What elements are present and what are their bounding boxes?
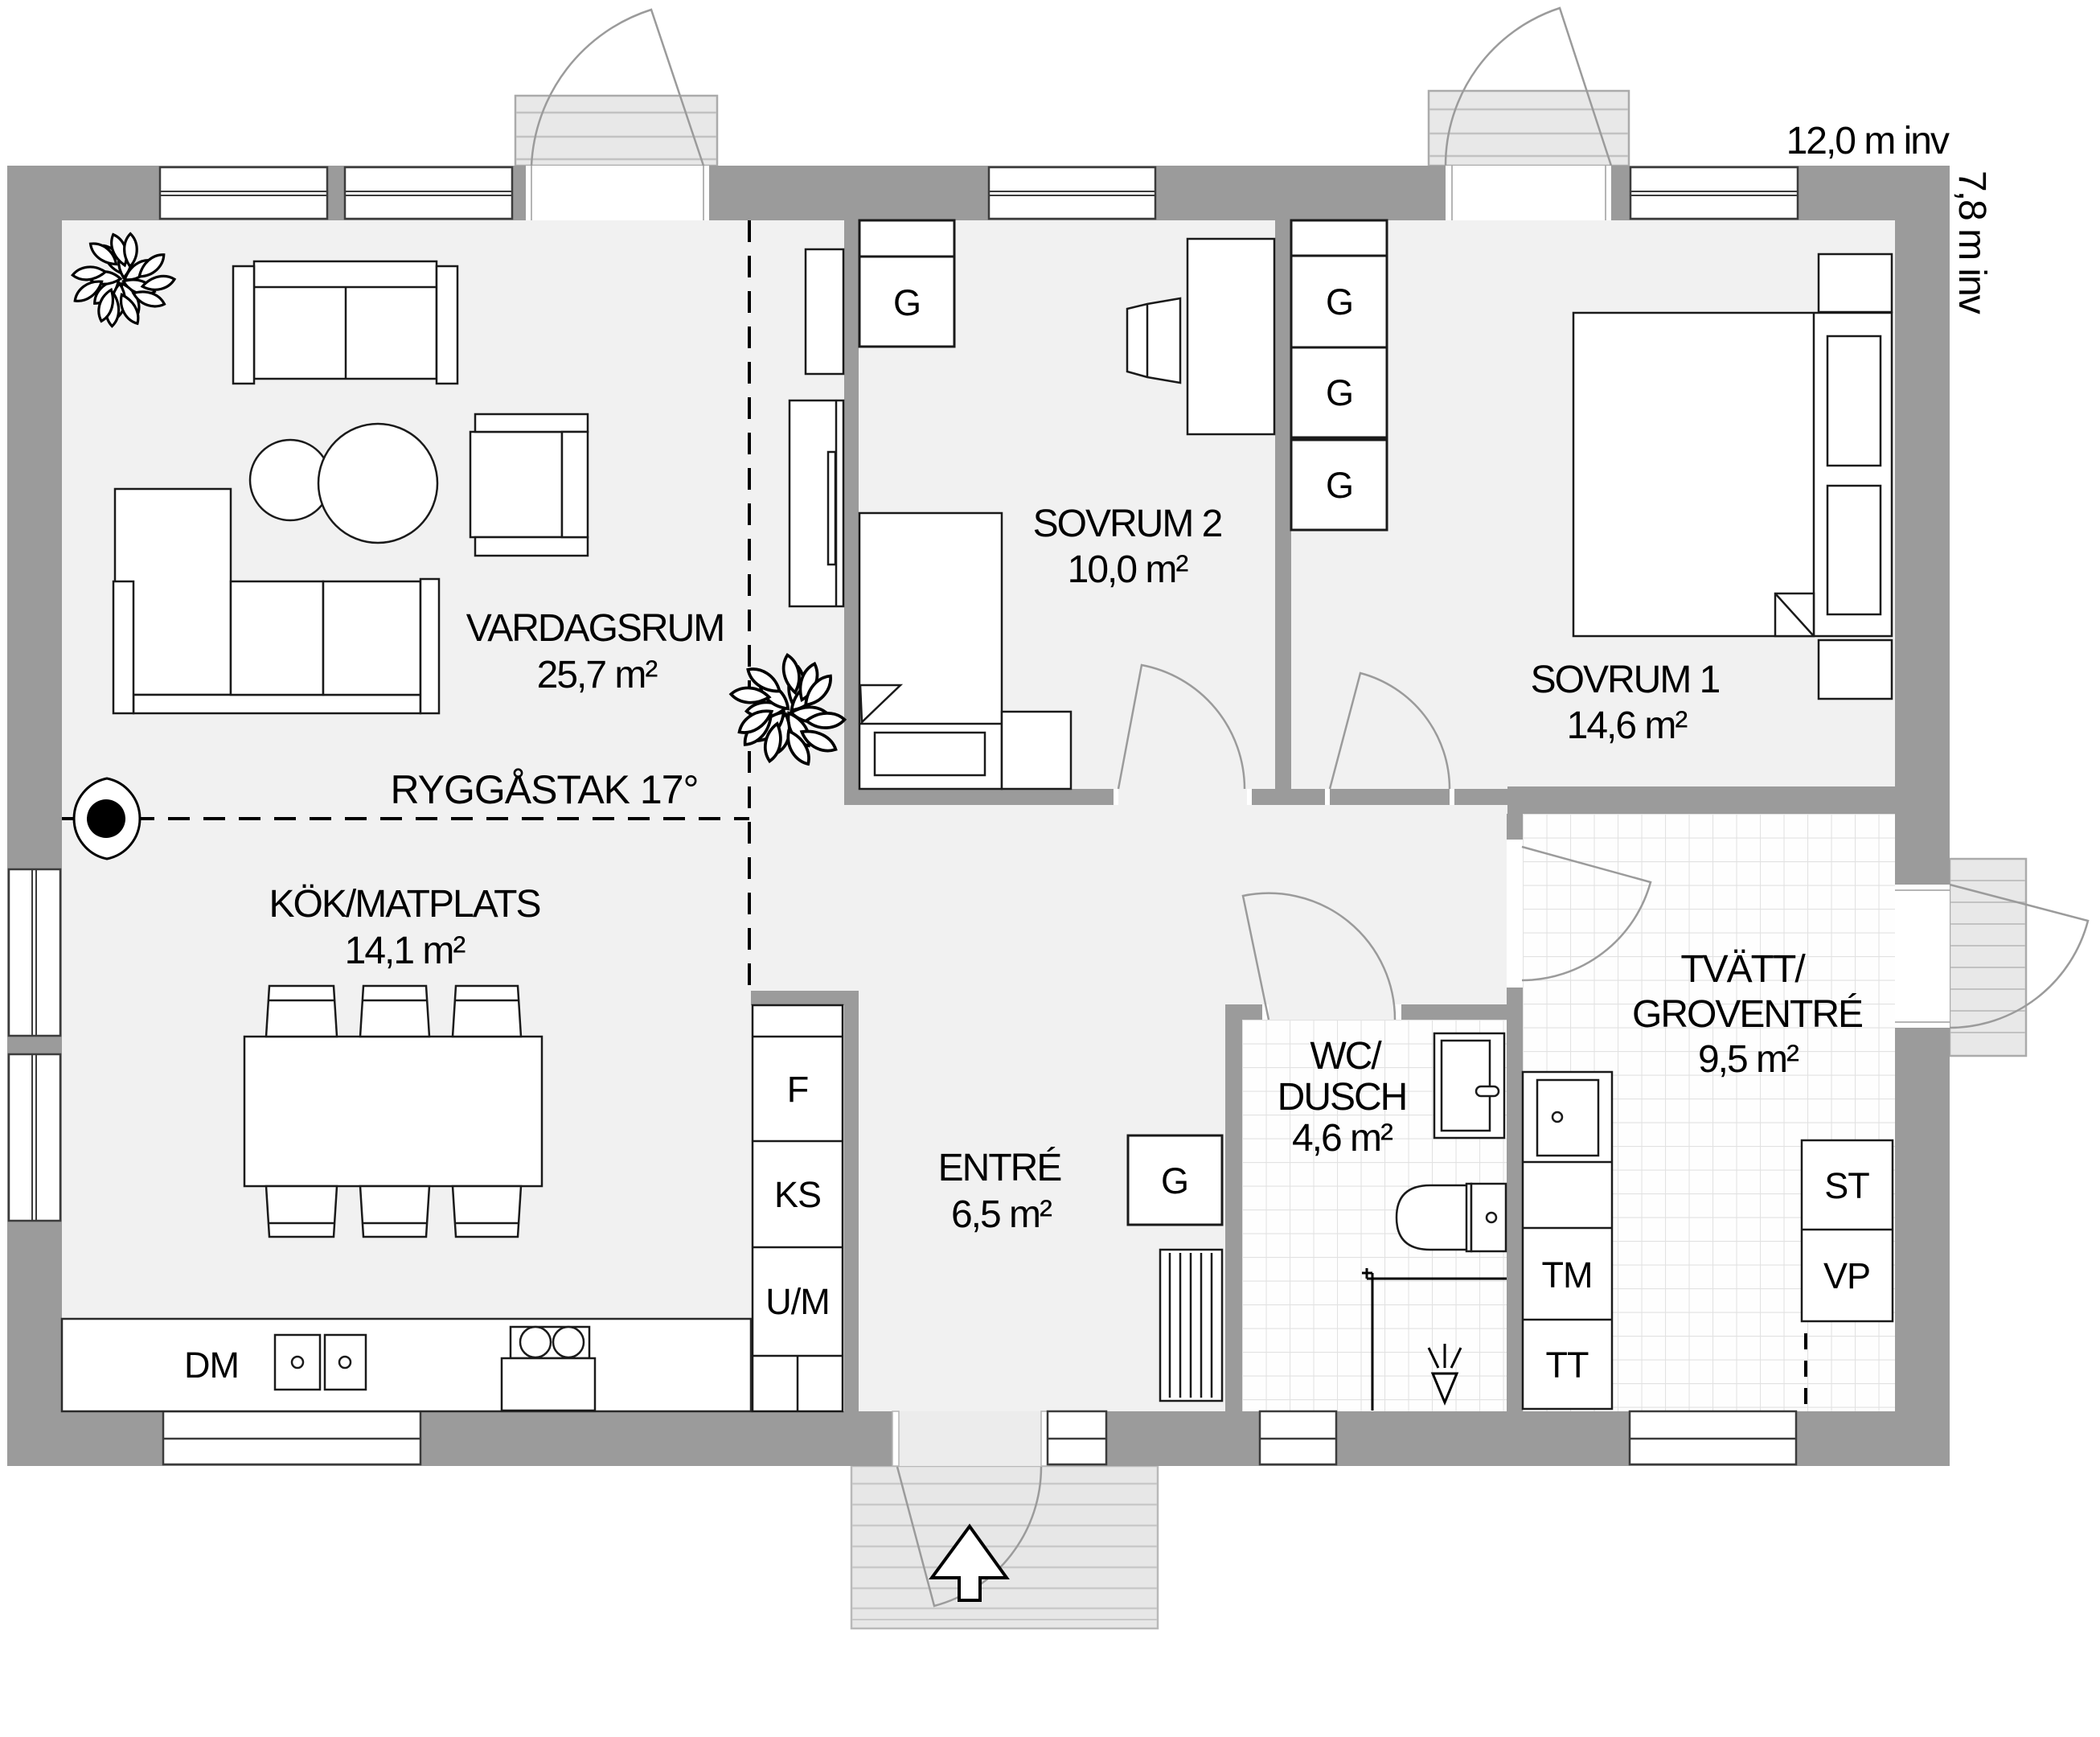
svg-text:TM: TM — [1542, 1254, 1593, 1296]
svg-text:25,7 m²: 25,7 m² — [537, 654, 658, 696]
svg-text:DM: DM — [184, 1345, 239, 1386]
svg-text:RYGGÅSTAK 17°: RYGGÅSTAK 17° — [390, 767, 698, 812]
svg-text:ENTRÉ: ENTRÉ — [938, 1147, 1061, 1189]
svg-text:G: G — [1326, 465, 1353, 506]
svg-text:DUSCH: DUSCH — [1278, 1076, 1407, 1119]
svg-text:GROVENTRÉ: GROVENTRÉ — [1632, 993, 1862, 1036]
svg-text:14,1 m²: 14,1 m² — [345, 930, 466, 972]
svg-text:U/M: U/M — [765, 1281, 830, 1322]
svg-text:4,6 m²: 4,6 m² — [1292, 1117, 1393, 1160]
svg-text:G: G — [1326, 372, 1353, 413]
svg-text:VP: VP — [1823, 1255, 1870, 1296]
svg-text:TVÄTT/: TVÄTT/ — [1680, 948, 1806, 991]
svg-text:G: G — [1161, 1160, 1188, 1201]
svg-text:KÖK/MATPLATS: KÖK/MATPLATS — [269, 883, 540, 926]
svg-text:SOVRUM 1: SOVRUM 1 — [1531, 659, 1720, 701]
svg-text:7,8 m inv: 7,8 m inv — [1950, 170, 1993, 314]
svg-text:G: G — [1326, 281, 1353, 322]
svg-text:TT: TT — [1546, 1345, 1589, 1386]
svg-text:ST: ST — [1824, 1165, 1869, 1206]
svg-text:10,0 m²: 10,0 m² — [1068, 548, 1189, 591]
svg-text:WC/: WC/ — [1310, 1035, 1382, 1078]
svg-text:SOVRUM 2: SOVRUM 2 — [1033, 503, 1222, 545]
svg-text:G: G — [893, 282, 921, 323]
svg-text:VARDAGSRUM: VARDAGSRUM — [466, 607, 724, 650]
svg-text:F: F — [787, 1069, 809, 1110]
svg-text:12,0 m inv: 12,0 m inv — [1786, 120, 1950, 162]
svg-text:KS: KS — [774, 1174, 821, 1215]
svg-text:6,5 m²: 6,5 m² — [951, 1193, 1052, 1236]
svg-text:9,5 m²: 9,5 m² — [1698, 1038, 1799, 1081]
svg-text:14,6 m²: 14,6 m² — [1567, 704, 1688, 747]
